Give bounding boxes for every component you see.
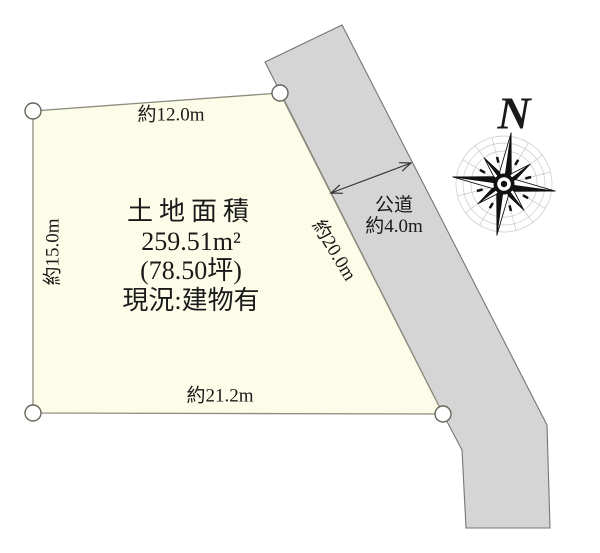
road-width: 約4.0m [365,216,423,237]
dimension-top: 約12.0m [137,106,204,127]
area-tsubo: (78.50坪) [60,256,322,286]
area-square-meters: 259.51m² [60,227,322,257]
corner-marker-top-right [272,85,288,101]
area-text-block: 土地面積 259.51m² (78.50坪) 現況:建物有 [60,197,322,315]
dimension-left: 約15.0m [44,218,65,285]
compass-rose-icon [445,125,562,242]
road-label: 公道 約4.0m [365,195,423,237]
area-title: 土地面積 [60,197,322,227]
corner-marker-bottom-left [25,405,41,421]
north-label: N [497,87,530,140]
corner-marker-bottom-right [435,406,451,422]
dimension-bottom: 約21.2m [186,387,253,408]
current-status: 現況:建物有 [60,286,322,316]
land-plot-diagram: 土地面積 259.51m² (78.50坪) 現況:建物有 約12.0m 約15… [0,0,600,553]
road-name: 公道 [365,195,423,216]
corner-marker-top-left [25,103,41,119]
